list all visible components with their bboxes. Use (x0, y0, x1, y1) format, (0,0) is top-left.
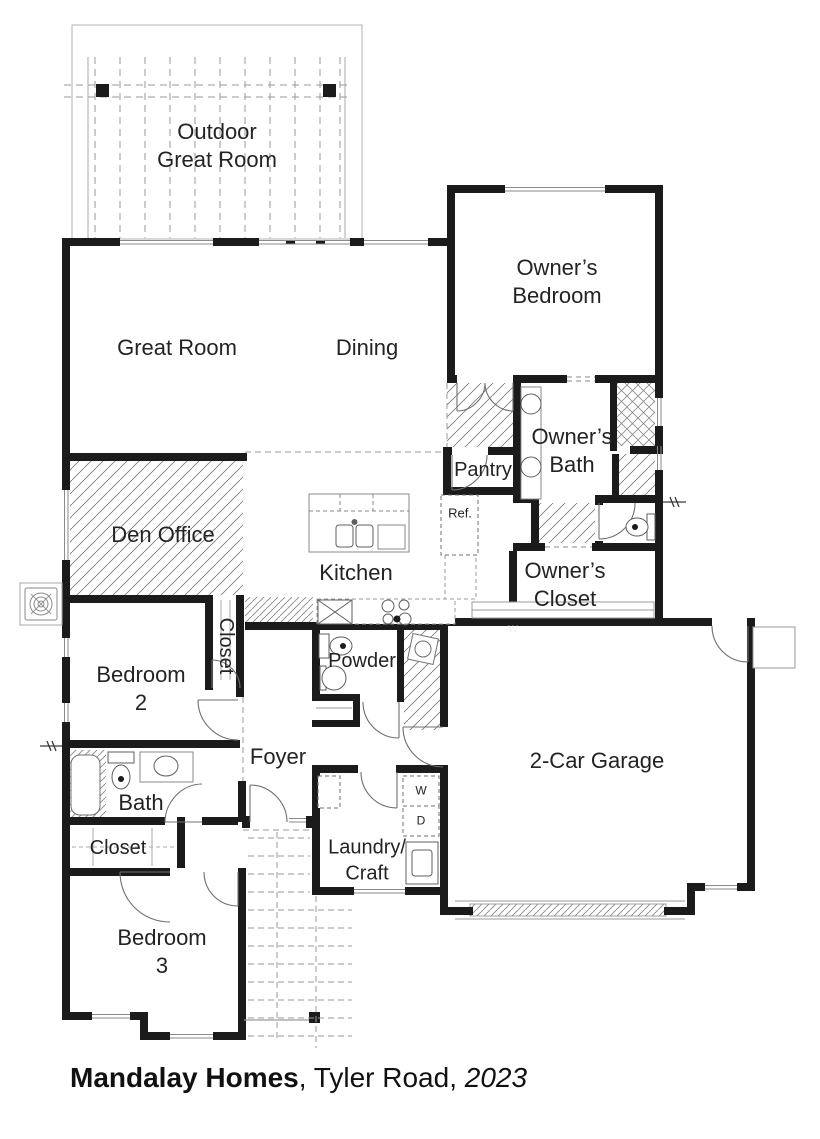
owners-toilet-icon (626, 514, 655, 540)
label-bedroom2-closet: Closet (212, 618, 238, 675)
label-great-room: Great Room (117, 334, 237, 362)
label-pantry: Pantry (454, 458, 512, 484)
range-hood-icon (318, 600, 352, 624)
kitchen-island (309, 494, 409, 552)
label-hall-closet: Closet (90, 836, 147, 862)
caption-year: 2023 (465, 1062, 527, 1093)
label-garage: 2-Car Garage (530, 747, 665, 775)
label-washer: W (415, 783, 426, 798)
laundry-sink-icon (406, 842, 438, 884)
caption-middle: , Tyler Road, (299, 1062, 465, 1093)
label-dining: Dining (336, 334, 398, 362)
label-owners-bedroom: Owner’s Bedroom (512, 254, 601, 310)
powder-door (363, 702, 399, 738)
caption-builder: Mandalay Homes (70, 1062, 299, 1093)
label-bedroom3: Bedroom 3 (117, 924, 206, 980)
garage-hall-door (403, 727, 443, 767)
front-door (250, 785, 287, 822)
bedroom3-closet-door (120, 872, 170, 922)
label-outdoor-great-room: Outdoor Great Room (157, 118, 277, 174)
label-powder: Powder (328, 649, 396, 675)
garage-stoop (753, 627, 795, 668)
label-bath: Bath (118, 789, 163, 817)
bath-toilet-icon (108, 752, 134, 789)
label-foyer: Foyer (250, 743, 306, 771)
label-closet-marker: W (508, 625, 517, 638)
label-owners-closet: Owner’s Closet (524, 557, 605, 613)
label-dryer: D (417, 813, 426, 828)
label-owners-bath: Owner’s Bath (531, 423, 612, 479)
label-den-office: Den Office (111, 521, 215, 549)
laundry-door (361, 772, 397, 808)
tub-icon (71, 755, 100, 815)
bedroom2-door (198, 700, 238, 740)
garage-entry-door (712, 626, 748, 662)
label-bedroom2: Bedroom 2 (96, 661, 185, 717)
floor-plan: Outdoor Great Room Owner’s Bedroom Great… (0, 0, 820, 1139)
water-heater-icon (408, 634, 439, 665)
label-laundry: Laundry/ Craft (328, 835, 406, 886)
bath-door (165, 784, 202, 822)
label-kitchen: Kitchen (319, 559, 392, 587)
refrigerator-box (441, 495, 478, 555)
ac-unit-icon (20, 583, 62, 625)
pergola-posts (96, 84, 336, 97)
bath-vanity (140, 752, 193, 782)
plan-caption: Mandalay Homes, Tyler Road, 2023 (70, 1062, 527, 1094)
bedroom3-door (204, 872, 238, 906)
label-refrigerator: Ref. (448, 506, 472, 523)
dishwasher-icon (378, 525, 405, 549)
